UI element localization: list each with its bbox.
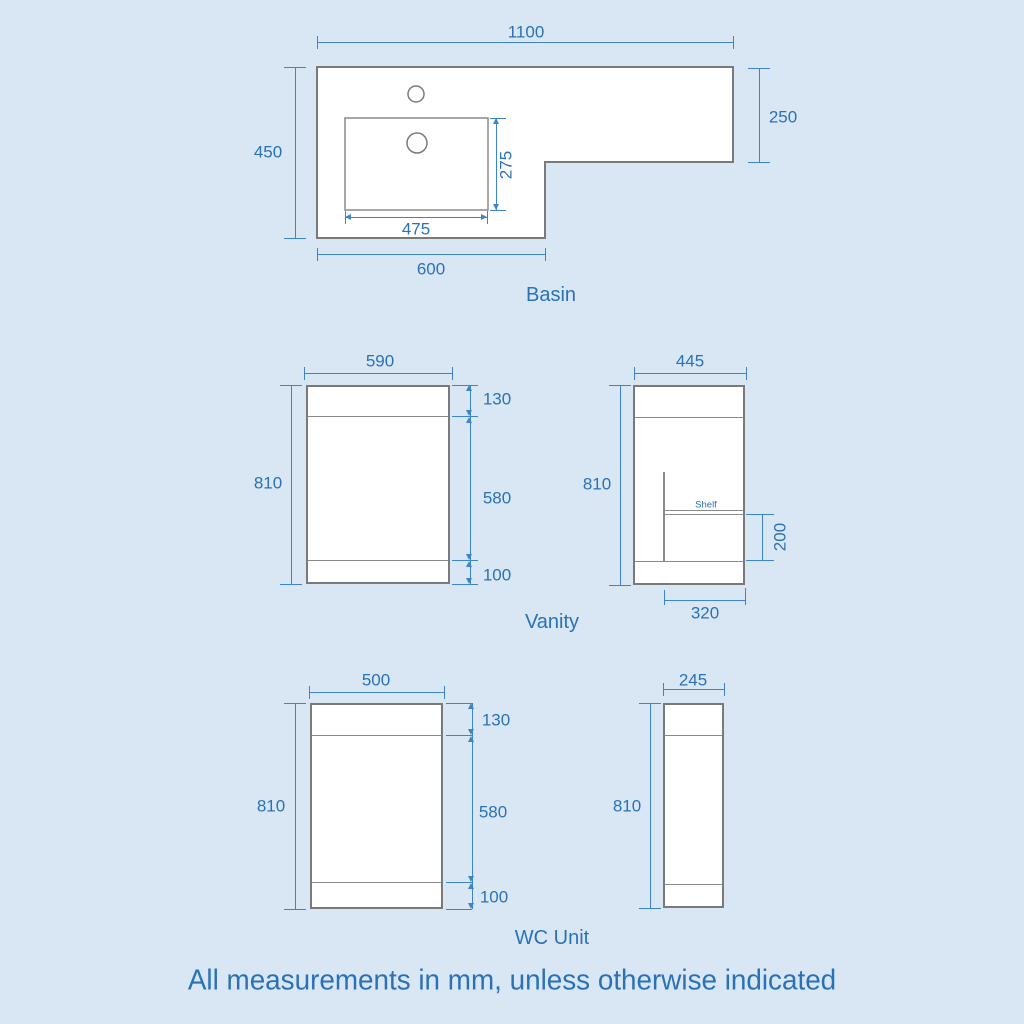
vanity-title: Vanity: [525, 612, 579, 632]
wc-side-width-label: 245: [679, 672, 707, 689]
basin-bowl-rect: [345, 118, 488, 210]
basin-left-width-label: 600: [417, 261, 445, 278]
measurements-footnote: All measurements in mm, unless otherwise…: [188, 967, 836, 996]
dim-tick: [490, 210, 506, 211]
dim-arrow: [468, 736, 474, 742]
panel-line: [312, 882, 441, 883]
dim-arrow: [466, 554, 472, 560]
vanity-shelf-depth-label: 320: [691, 605, 719, 622]
dim-arrow: [345, 214, 351, 220]
basin-bowl-depth-label: 275: [498, 151, 515, 179]
dim-tick: [317, 248, 318, 261]
vanity-side-width-label: 445: [676, 353, 704, 370]
dim-tick: [452, 367, 453, 380]
ext-line: [452, 560, 478, 561]
dim-arrow: [466, 578, 472, 584]
dim-line: [345, 217, 487, 218]
dim-line: [317, 254, 545, 255]
ext-line: [746, 514, 774, 515]
dim-tick: [304, 367, 305, 380]
dim-tick: [284, 238, 306, 239]
dim-tick: [724, 683, 725, 696]
panel-line: [635, 417, 743, 418]
dim-arrow: [466, 410, 472, 416]
dim-arrow: [493, 204, 499, 210]
dim-tick: [487, 211, 488, 224]
ext-line: [452, 584, 478, 585]
dim-arrow: [466, 385, 472, 391]
ext-line: [452, 385, 478, 386]
back-panel-line: [663, 472, 665, 561]
dim-line: [295, 703, 296, 909]
dim-tick: [317, 36, 318, 49]
dim-line: [317, 42, 733, 43]
dim-tick: [733, 36, 734, 49]
panel-line: [635, 561, 743, 562]
dim-tick: [748, 68, 770, 69]
dim-tick: [748, 162, 770, 163]
dim-line: [634, 373, 746, 374]
dim-arrow: [468, 703, 474, 709]
tap-hole-circle: [408, 86, 424, 102]
dim-tick: [284, 67, 306, 68]
basin-left-height-label: 450: [254, 144, 282, 161]
vanity-front-top-section-label: 130: [483, 391, 511, 408]
wc-side-height-label: 810: [613, 798, 641, 815]
wc-front-outline: [310, 703, 443, 909]
dim-tick: [284, 703, 306, 704]
dim-line: [291, 385, 292, 584]
dim-tick: [309, 686, 310, 699]
ext-line: [746, 560, 774, 561]
dim-arrow: [468, 876, 474, 882]
dim-line: [650, 703, 651, 908]
basin-title: Basin: [526, 285, 576, 305]
dim-tick: [634, 367, 635, 380]
wc-side-outline: [663, 703, 724, 908]
dim-tick: [609, 585, 631, 586]
dim-line: [664, 600, 746, 601]
ext-line: [745, 588, 746, 605]
ext-line: [446, 909, 472, 910]
dim-line: [762, 514, 763, 561]
wc-front-height-label: 810: [257, 798, 285, 815]
waste-hole-circle: [407, 133, 427, 153]
vanity-side-outline: [633, 385, 745, 585]
shelf-bar: [665, 510, 743, 515]
dim-line: [295, 67, 296, 238]
dim-line: [309, 692, 444, 693]
dim-line: [620, 385, 621, 585]
wc-front-middle-section-label: 580: [479, 804, 507, 821]
wc-title: WC Unit: [515, 928, 589, 948]
dim-tick: [639, 908, 661, 909]
basin-overall-width-label: 1100: [508, 24, 545, 41]
panel-line: [312, 735, 441, 736]
panel-line: [665, 735, 722, 736]
basin-right-height-label: 250: [769, 109, 797, 126]
vanity-side-height-label: 810: [583, 476, 611, 493]
vanity-front-outline: [306, 385, 450, 584]
dim-arrow: [468, 883, 474, 889]
basin-bowl-width-label: 475: [402, 221, 430, 238]
wc-front-width-label: 500: [362, 672, 390, 689]
panel-line: [665, 884, 722, 885]
wc-front-bottom-section-label: 100: [480, 889, 508, 906]
vanity-front-height-label: 810: [254, 475, 282, 492]
dim-line: [759, 68, 760, 162]
dimension-diagram: 1100 450 250 275 475 600 Basin: [0, 0, 1024, 1024]
dim-tick: [280, 385, 302, 386]
vanity-front-bottom-section-label: 100: [483, 567, 511, 584]
dim-arrow: [468, 903, 474, 909]
dim-line: [304, 373, 452, 374]
shelf-label: Shelf: [695, 500, 717, 510]
wc-front-top-section-label: 130: [482, 712, 510, 729]
dim-tick: [746, 367, 747, 380]
dim-arrow: [466, 417, 472, 423]
dim-tick: [545, 248, 546, 261]
panel-line: [308, 560, 448, 561]
vanity-front-width-label: 590: [366, 353, 394, 370]
ext-line: [664, 590, 665, 605]
dim-tick: [444, 686, 445, 699]
vanity-shelf-height-label: 200: [772, 523, 789, 551]
dim-tick: [284, 909, 306, 910]
dim-tick: [609, 385, 631, 386]
dim-arrow: [493, 118, 499, 124]
panel-line: [308, 416, 448, 417]
vanity-front-middle-section-label: 580: [483, 490, 511, 507]
dim-tick: [280, 584, 302, 585]
dim-arrow: [466, 561, 472, 567]
dim-arrow: [481, 214, 487, 220]
dim-tick: [639, 703, 661, 704]
dim-arrow: [468, 729, 474, 735]
ext-line: [452, 416, 478, 417]
dim-tick: [663, 683, 664, 696]
